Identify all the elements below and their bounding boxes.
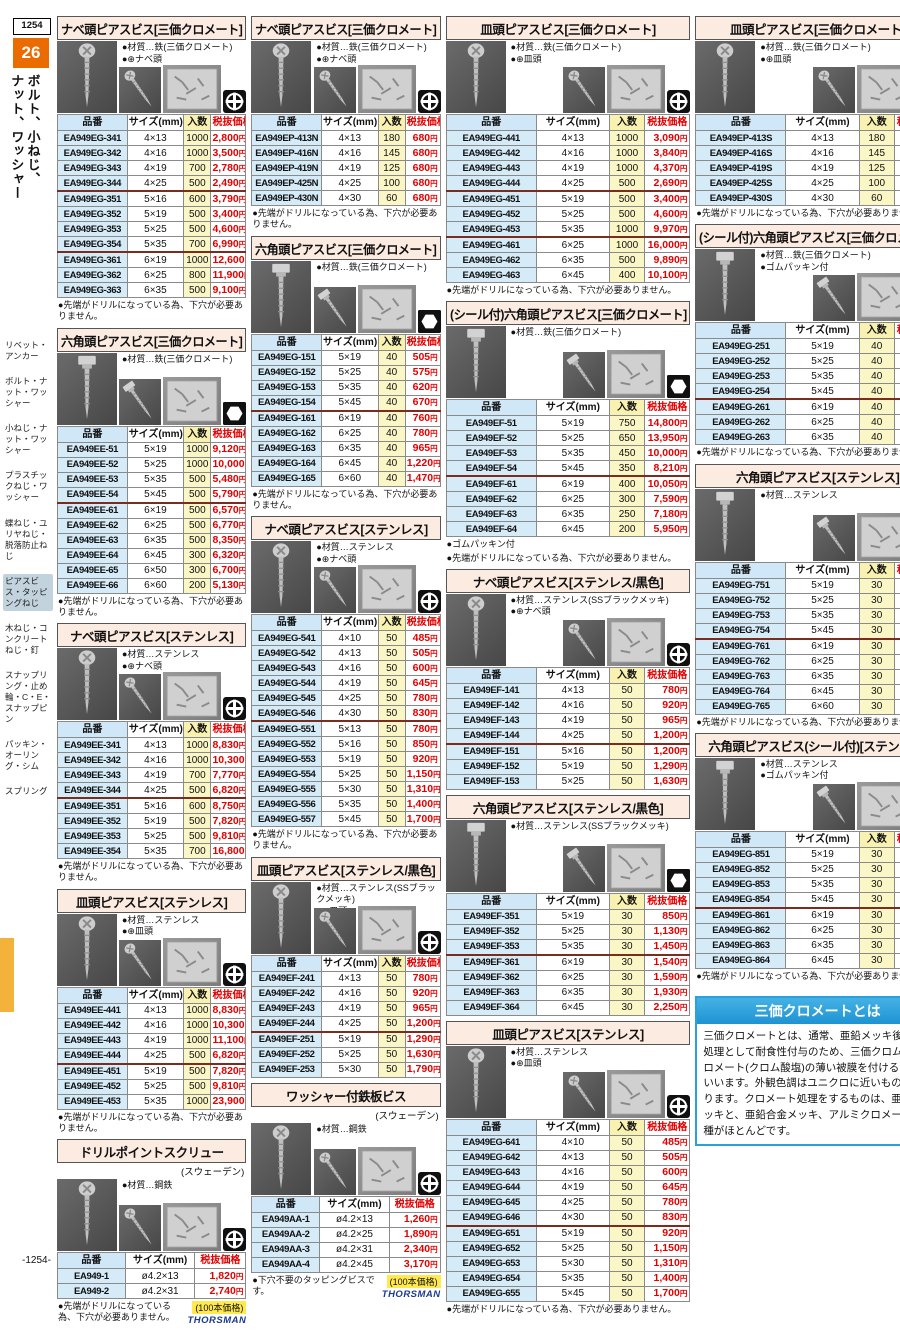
table-row: EA949EE-646×453006,320円	[58, 548, 246, 563]
sidebar-category: 蝶ねじ・ユリヤねじ・脱落防止ねじ	[3, 516, 53, 564]
table-row: EA949EG-7616×19301,130円	[696, 639, 900, 655]
product-photos: ●材質…鉄(三価クロメート)	[251, 261, 440, 333]
phillips-head-badge-icon	[223, 90, 246, 113]
size-cell: 6×35	[536, 985, 609, 1000]
qty-cell: 50	[378, 737, 405, 752]
category-list: リベット・アンカーボルト・ナット・ワッシャー小ねじ・ナット・ワッシャープラスチッ…	[3, 338, 53, 809]
qty-cell: 40	[378, 456, 405, 471]
part-number-cell: EA949EF-63	[446, 507, 536, 522]
product-block: ナベ頭ピアスビス[ステンレス/黒色]●材質…ステンレス(SSブラックメッキ)●⊕…	[446, 569, 691, 790]
table-header-row: 品番サイズ(mm)入数税抜価格	[446, 893, 690, 909]
part-number-cell: EA949EF-53	[446, 446, 536, 461]
part-number-cell: EA949EF-244	[252, 1016, 322, 1032]
price-cell: 23,900円	[211, 1094, 246, 1109]
price-cell: 5,130円	[211, 578, 246, 593]
part-number-cell: EA949EG-651	[446, 1226, 536, 1242]
sidebar-category: ボルト・ナット・ワッシャー	[3, 374, 53, 411]
product-block: 六角頭ピアスビス[ステンレス]●材質…ステンレス品番サイズ(mm)入数税抜価格E…	[695, 464, 900, 728]
table-row: EA949EG-1535×3540620円	[252, 380, 440, 395]
qty-cell: 50	[378, 661, 405, 676]
size-cell: 5×35	[786, 877, 859, 892]
qty-cell: 125	[378, 161, 405, 176]
price-cell: 6,820円	[211, 783, 246, 799]
table-row: EA949EG-8515×19301,360円	[696, 847, 900, 862]
section-index-tab	[0, 938, 14, 1012]
table-row: EA949EG-3616×19100012,600円	[58, 252, 246, 268]
product-title: 皿頭ピアスビス[三価クロメート]	[446, 16, 691, 40]
catalog-grid: ナベ頭ピアスビス[三価クロメート]●材質…鉄(三価クロメート)●⊕ナベ頭品番サイ…	[57, 16, 895, 1331]
size-cell: 6×45	[786, 953, 859, 968]
price-cell: 5,480円	[211, 472, 246, 487]
info-box: 三価クロメートとは三価クロメートとは、通常、亜鉛メッキ後の後処理として耐食性付与…	[695, 996, 900, 1146]
table-row: EA949EP-413N4×13180680円	[252, 131, 440, 146]
spec-item: ●ゴムパッキン付	[760, 770, 900, 782]
price-cell: 680円	[405, 176, 440, 191]
qty-cell: 650	[609, 431, 644, 446]
part-number-cell: EA949EG-752	[696, 593, 786, 608]
price-cell: 1,890円	[389, 1227, 440, 1242]
column-header: 品番	[58, 1253, 126, 1269]
price-cell: 1,130円	[894, 654, 900, 669]
table-row: EA949EF-515×1975014,800円	[446, 416, 690, 431]
table-row: EA949EE-525×25100010,000円	[58, 457, 246, 472]
product-table: 品番サイズ(mm)税抜価格EA949-1ø4.2×131,820円EA949-2…	[57, 1252, 246, 1299]
column-header: 品番	[252, 115, 322, 131]
table-row: EA949EG-4424×1610003,840円	[446, 146, 690, 161]
part-number-cell: EA949EG-462	[446, 253, 536, 268]
column-header: 入数	[859, 115, 894, 131]
qty-cell: 50	[378, 752, 405, 767]
column-header: 品番	[252, 615, 322, 631]
qty-cell: 500	[184, 487, 211, 503]
table-row: EA949EG-5434×1650600円	[252, 661, 440, 676]
size-cell: 5×25	[536, 431, 609, 446]
qty-cell: 50	[609, 1210, 644, 1226]
table-row: EA949EF-3646×45302,250円	[446, 1000, 690, 1015]
part-number-cell: EA949EE-54	[58, 487, 128, 503]
table-row: EA949EG-8646×45302,370円	[696, 953, 900, 968]
product-photos: ●材質…鉄(三価クロメート)	[446, 326, 691, 398]
product-photos: ●材質…鉄(三価クロメート)●⊕皿頭	[446, 41, 691, 113]
chapter-number-badge: 26	[13, 38, 49, 68]
table-row: EA949EF-2525×25501,630円	[252, 1047, 440, 1062]
spec-item: ●材質…鉄(三価クロメート)	[316, 262, 440, 274]
qty-cell: 500	[184, 814, 211, 829]
size-cell: 5×25	[127, 222, 183, 237]
price-cell: 920円	[645, 1226, 690, 1242]
product-photo-screw	[57, 648, 117, 720]
size-cell: 4×19	[536, 713, 609, 728]
part-number-cell: EA949EG-341	[58, 131, 128, 146]
sidebar-category: 木ねじ・コンクリートねじ・釘	[3, 621, 53, 658]
price-cell: 1,290円	[894, 384, 900, 400]
table-row: EA949EG-4616×25100016,000円	[446, 237, 690, 253]
size-cell: 4×16	[127, 753, 183, 768]
price-unit-note: (100本価格)	[387, 1275, 441, 1288]
column-header: 税抜価格	[645, 400, 690, 416]
qty-cell: 30	[859, 923, 894, 938]
part-number-cell: EA949EG-263	[696, 430, 786, 445]
size-cell: 6×45	[536, 268, 609, 283]
table-row: EA949EE-4535×35100023,900円	[58, 1094, 246, 1109]
product-photos: ●材質…鉄(三価クロメート)●⊕ナベ頭	[57, 41, 246, 113]
price-cell: 1,290円	[405, 1032, 440, 1048]
size-cell: 5×16	[127, 191, 183, 207]
table-row: EA949EG-6424×1350505円	[446, 1150, 690, 1165]
price-cell: 13,950円	[645, 431, 690, 446]
qty-cell: 200	[184, 578, 211, 593]
sidebar-category: スナップリング・止め輪・C・E・スナップピン	[3, 668, 53, 727]
column-header: 品番	[252, 955, 322, 971]
qty-cell: 1000	[184, 252, 211, 268]
size-cell: 5×25	[322, 767, 378, 782]
size-cell: 4×25	[536, 728, 609, 744]
table-row: EA949EG-5545×25501,150円	[252, 767, 440, 782]
table-row: EA949AA-2ø4.2×251,890円	[252, 1227, 440, 1242]
table-row: EA949EG-1646×45401,220円	[252, 456, 440, 471]
qty-cell: 500	[184, 176, 211, 192]
table-row: EA949EG-6525×25501,150円	[446, 1241, 690, 1256]
sidebar-category: パッキン・オーリング・シム	[3, 737, 53, 774]
price-cell: 680円	[405, 131, 440, 146]
sidebar-category: ピアスビス・タッピングねじ	[3, 574, 53, 611]
qty-cell: 250	[609, 507, 644, 522]
column-header: サイズ(mm)	[322, 334, 378, 350]
table-row: EA949EG-5555×30501,310円	[252, 782, 440, 797]
size-cell: 4×25	[127, 783, 183, 799]
price-cell: 3,500円	[211, 146, 246, 161]
product-photo-package	[857, 782, 900, 830]
table-row: EA949EG-3434×197002,780円	[58, 161, 246, 176]
size-cell: 6×25	[536, 970, 609, 985]
qty-cell: 40	[859, 415, 894, 430]
column-header: サイズ(mm)	[322, 955, 378, 971]
size-cell: 4×13	[536, 683, 609, 698]
size-cell: ø4.2×45	[320, 1257, 390, 1272]
table-header-row: 品番サイズ(mm)入数税抜価格	[58, 426, 246, 442]
table-row: EA949EG-7656×60301,820円	[696, 699, 900, 714]
table-row: EA949EF-1414×1350780円	[446, 683, 690, 698]
price-cell: 505円	[645, 1150, 690, 1165]
product-block: 六角頭ピアスビス[三価クロメート]●材質…鉄(三価クロメート)品番サイズ(mm)…	[57, 328, 246, 619]
size-cell: 5×19	[127, 1064, 183, 1080]
qty-cell: 700	[184, 237, 211, 253]
qty-cell: 50	[609, 1180, 644, 1195]
price-cell: 3,790円	[211, 191, 246, 207]
part-number-cell: EA949EE-441	[58, 1003, 128, 1018]
size-cell: 5×35	[127, 844, 183, 859]
part-number-cell: EA949EE-442	[58, 1018, 128, 1033]
price-cell: 1,930円	[645, 985, 690, 1000]
product-block: ナベ頭ピアスビス[ステンレス]●材質…ステンレス●⊕ナベ頭品番サイズ(mm)入数…	[57, 623, 246, 884]
price-cell: 1,930円	[894, 892, 900, 908]
table-header-row: 品番サイズ(mm)入数税抜価格	[58, 987, 246, 1003]
table-row: EA949EG-8616×19301,960円	[696, 908, 900, 924]
qty-cell: 50	[378, 1001, 405, 1016]
column-header: 品番	[58, 115, 128, 131]
qty-cell: 145	[378, 146, 405, 161]
qty-cell: 30	[609, 909, 644, 924]
qty-cell: 500	[184, 503, 211, 519]
size-cell: 4×25	[322, 1016, 378, 1032]
product-title: 六角頭ピアスビス[ステンレス]	[695, 464, 900, 488]
table-row: EA949EG-6414×1050485円	[446, 1135, 690, 1150]
price-cell: 1,130円	[894, 639, 900, 655]
size-cell: 5×45	[786, 384, 859, 400]
price-cell: 850円	[645, 909, 690, 924]
qty-cell: 500	[184, 518, 211, 533]
qty-cell: 40	[378, 365, 405, 380]
size-cell: 4×16	[127, 146, 183, 161]
column-header: 品番	[696, 562, 786, 578]
size-cell: 6×19	[322, 411, 378, 427]
spec-item: ●材質…鉄(三価クロメート)	[760, 250, 900, 262]
info-box-title: 三価クロメートとは	[697, 998, 900, 1024]
qty-cell: 40	[378, 426, 405, 441]
product-title: 六角頭ピアスビス[三価クロメート]	[251, 236, 440, 260]
price-cell: 10,100円	[645, 268, 690, 283]
size-cell: 5×19	[786, 847, 859, 862]
product-photo-package	[358, 65, 416, 113]
table-row: EA949EG-2636×35401,590円	[696, 430, 900, 445]
size-cell: 5×25	[322, 1047, 378, 1062]
product-photo-package	[163, 377, 221, 425]
table-row: EA949EG-3424×1610003,500円	[58, 146, 246, 161]
qty-cell: 30	[859, 578, 894, 593]
price-cell: 920円	[405, 752, 440, 767]
table-row: EA949EG-7626×25301,130円	[696, 654, 900, 669]
price-cell: 780円	[405, 426, 440, 441]
price-cell: 1,290円	[645, 759, 690, 774]
price-cell: 6,820円	[211, 1048, 246, 1064]
part-number-cell: EA949EE-52	[58, 457, 128, 472]
product-photo-angle	[119, 1205, 161, 1251]
table-row: EA949EP-416S4×16145680円	[696, 146, 900, 161]
spec-item: ●材質…ステンレス(SSブラックメッキ)	[511, 821, 691, 833]
table-row: EA949EP-430N4×3060680円	[252, 191, 440, 206]
product-block: 六角頭ピアスビス[三価クロメート]●材質…鉄(三価クロメート)品番サイズ(mm)…	[251, 236, 440, 512]
product-photo-angle	[314, 908, 356, 954]
size-cell: 5×30	[322, 782, 378, 797]
size-cell: 6×35	[786, 938, 859, 953]
product-block: (シール付)六角頭ピアスビス[三価クロメート]●材質…鉄(三価クロメート)品番サ…	[446, 301, 691, 564]
size-cell: 5×19	[322, 752, 378, 767]
product-table: 品番サイズ(mm)入数税抜価格EA949EP-413N4×13180680円EA…	[251, 114, 440, 206]
price-cell: 1,150円	[405, 767, 440, 782]
size-cell: 6×25	[536, 237, 609, 253]
product-photo-screw	[251, 1123, 311, 1195]
table-row: EA949EF-525×2565013,950円	[446, 431, 690, 446]
part-number-cell: EA949EG-863	[696, 938, 786, 953]
part-number-cell: EA949EF-352	[446, 924, 536, 939]
product-photos: ●材質…ステンレス(SSブラックメッキ)	[446, 820, 691, 892]
column-header: サイズ(mm)	[322, 615, 378, 631]
size-cell: 4×19	[127, 161, 183, 176]
brand-logo: THORSMAN	[382, 1289, 441, 1300]
product-photo-angle	[563, 1072, 605, 1118]
part-number-cell: EA949EP-413N	[252, 131, 322, 146]
part-number-cell: EA949EG-261	[696, 399, 786, 415]
size-cell: 6×25	[536, 492, 609, 507]
size-cell: 4×25	[786, 176, 859, 191]
qty-cell: 50	[609, 1135, 644, 1150]
part-number-cell: EA949EG-152	[252, 365, 322, 380]
part-number-cell: EA949AA-1	[252, 1212, 320, 1227]
size-cell: 5×45	[536, 1286, 609, 1301]
size-cell: 4×16	[536, 146, 609, 161]
part-number-cell: EA949EP-413S	[696, 131, 786, 146]
part-number-cell: EA949EG-251	[696, 339, 786, 354]
size-cell: 4×19	[786, 161, 859, 176]
qty-cell: 600	[184, 191, 211, 207]
size-cell: 5×35	[536, 222, 609, 238]
table-row: EA949EG-5444×1950645円	[252, 676, 440, 691]
price-cell: 9,810円	[211, 1079, 246, 1094]
qty-cell: 50	[609, 1271, 644, 1286]
part-number-cell: EA949EE-343	[58, 768, 128, 783]
price-cell: 10,300円	[211, 1018, 246, 1033]
product-table: 品番サイズ(mm)入数税抜価格EA949EE-3414×1310008,830円…	[57, 721, 246, 859]
product-note: ●先端がドリルになっている為、下穴が必要ありません。	[447, 285, 691, 296]
part-number-cell: EA949EG-461	[446, 237, 536, 253]
column-header: 入数	[378, 115, 405, 131]
part-number-cell: EA949EF-361	[446, 955, 536, 971]
qty-cell: 40	[378, 395, 405, 411]
column-header: 入数	[859, 323, 894, 339]
part-number-cell: EA949EF-151	[446, 744, 536, 760]
qty-cell: 30	[859, 847, 894, 862]
table-row: EA949EG-8545×45301,930円	[696, 892, 900, 908]
qty-cell: 1000	[184, 146, 211, 161]
part-number-cell: EA949EG-654	[446, 1271, 536, 1286]
price-cell: 1,260円	[389, 1212, 440, 1227]
table-row: EA949EG-6444×1950645円	[446, 1180, 690, 1195]
part-number-cell: EA949EG-761	[696, 639, 786, 655]
price-cell: 1,820円	[195, 1269, 246, 1284]
part-number-cell: EA949EF-253	[252, 1062, 322, 1077]
qty-cell: 50	[609, 1286, 644, 1301]
product-photo-screw	[57, 1179, 117, 1251]
price-cell: 1,680円	[894, 877, 900, 892]
product-photo-package	[358, 906, 416, 954]
qty-cell: 180	[859, 131, 894, 146]
product-block: ドリルポイントスクリュー(スウェーデン)●材質…鋼鉄品番サイズ(mm)税抜価格E…	[57, 1139, 246, 1326]
product-block: ナベ頭ピアスビス[三価クロメート]●材質…鉄(三価クロメート)●⊕ナベ頭品番サイ…	[251, 16, 440, 231]
page-number-tab: 1254	[13, 18, 51, 35]
product-note: ●先端がドリルになっている為、下穴が必要ありません。	[58, 596, 246, 619]
phillips-head-badge-icon	[223, 963, 246, 986]
column-header: サイズ(mm)	[536, 1119, 609, 1135]
product-table: 品番サイズ(mm)入数税抜価格EA949EF-515×1975014,800円E…	[446, 399, 691, 537]
product-photos: ●材質…鉄(三価クロメート)	[57, 353, 246, 425]
hex-head-badge-icon	[667, 869, 690, 892]
price-cell: 2,020円	[894, 923, 900, 938]
size-cell: 4×25	[322, 691, 378, 706]
price-cell: 645円	[405, 676, 440, 691]
product-note: ●ゴムパッキン付	[447, 539, 691, 550]
price-cell: 8,350円	[211, 533, 246, 548]
price-cell: 760円	[405, 411, 440, 427]
column-header: サイズ(mm)	[322, 115, 378, 131]
qty-cell: 500	[184, 283, 211, 298]
size-cell: 4×19	[322, 1001, 378, 1016]
product-subtitle: (スウェーデン)	[251, 1108, 438, 1122]
table-row: EA949EF-2444×25501,200円	[252, 1016, 440, 1032]
qty-cell: 30	[609, 924, 644, 939]
table-row: EA949EP-425N4×25100680円	[252, 176, 440, 191]
part-number-cell: EA949EG-363	[58, 283, 128, 298]
table-row: EA949EF-3626×25301,590円	[446, 970, 690, 985]
qty-cell: 30	[859, 669, 894, 684]
table-row: EA949EG-8535×35301,680円	[696, 877, 900, 892]
price-cell: 1,150円	[645, 1241, 690, 1256]
qty-cell: 60	[378, 191, 405, 206]
price-cell: 680円	[894, 131, 900, 146]
table-row: EA949EG-1636×3540965円	[252, 441, 440, 456]
column-header: 入数	[609, 115, 644, 131]
size-cell: 4×25	[127, 1048, 183, 1064]
table-row: EA949EE-535×355005,480円	[58, 472, 246, 487]
qty-cell: 30	[859, 684, 894, 699]
price-cell: 7,820円	[211, 1064, 246, 1080]
qty-cell: 500	[609, 207, 644, 222]
part-number-cell: EA949EG-764	[696, 684, 786, 699]
column-header: 税抜価格	[389, 1196, 440, 1212]
price-cell: 2,490円	[211, 176, 246, 192]
size-cell: 4×10	[536, 1135, 609, 1150]
qty-cell: 40	[859, 430, 894, 445]
part-number-cell: EA949EE-344	[58, 783, 128, 799]
qty-cell: 700	[184, 844, 211, 859]
spec-item: ●材質…ステンレス	[760, 759, 900, 771]
table-row: EA949AA-4ø4.2×453,170円	[252, 1257, 440, 1272]
price-cell: 16,000円	[645, 237, 690, 253]
column-header: サイズ(mm)	[127, 426, 183, 442]
column-header: 品番	[696, 831, 786, 847]
size-cell: 5×19	[536, 909, 609, 924]
qty-cell: 50	[609, 728, 644, 744]
part-number-cell: EA949EF-363	[446, 985, 536, 1000]
qty-cell: 30	[859, 908, 894, 924]
spec-item: ●材質…鉄(三価クロメート)	[316, 42, 440, 54]
size-cell: 4×13	[127, 131, 183, 146]
part-number-cell: EA949EG-645	[446, 1195, 536, 1210]
price-cell: 4,600円	[211, 222, 246, 237]
part-number-cell: EA949EE-451	[58, 1064, 128, 1080]
size-cell: 5×19	[127, 207, 183, 222]
price-cell: 1,820円	[894, 699, 900, 714]
table-header-row: 品番サイズ(mm)入数税抜価格	[252, 115, 440, 131]
price-cell: 600円	[405, 661, 440, 676]
qty-cell: 50	[378, 631, 405, 646]
product-photo-package	[607, 844, 665, 892]
column-header: 税抜価格	[645, 893, 690, 909]
size-cell: 5×19	[536, 191, 609, 207]
qty-cell: 30	[609, 955, 644, 971]
table-row: EA949EF-636×352507,180円	[446, 507, 690, 522]
table-row: EA949EG-7646×45301,500円	[696, 684, 900, 699]
price-cell: 780円	[405, 691, 440, 706]
table-row: EA949EE-3515×166008,750円	[58, 798, 246, 814]
part-number-cell: EA949EG-864	[696, 953, 786, 968]
spec-item: ●材質…ステンレス	[316, 542, 440, 554]
product-photo-angle	[813, 67, 855, 113]
product-photo-angle	[314, 67, 356, 113]
table-row: EA949EP-413S4×13180680円	[696, 131, 900, 146]
phillips-head-badge-icon	[418, 90, 441, 113]
product-photos: ●材質…ステンレス(SSブラックメッキ)●⊕皿頭	[251, 882, 440, 954]
product-photos: ●材質…鋼鉄	[57, 1179, 246, 1251]
